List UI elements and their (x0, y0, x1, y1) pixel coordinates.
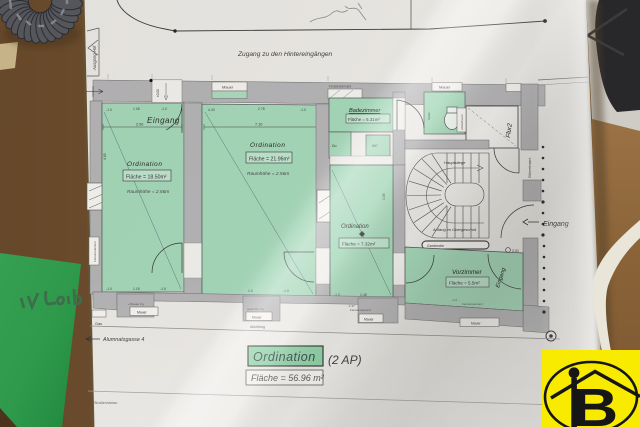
svg-text:B: B (572, 377, 619, 427)
